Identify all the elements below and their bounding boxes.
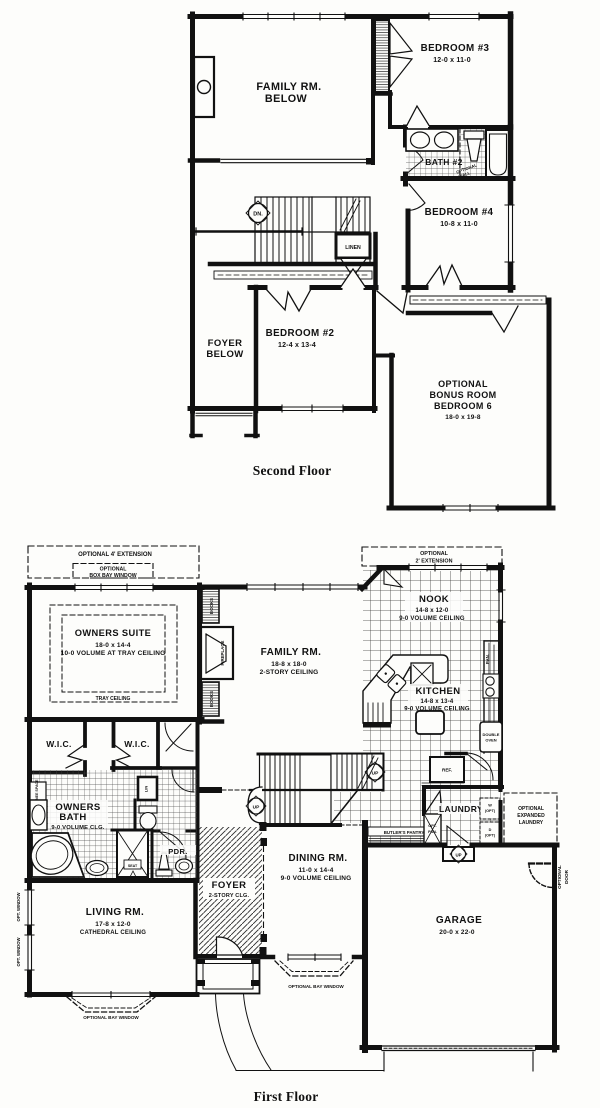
svg-text:14-8 x 13-4: 14-8 x 13-4	[421, 699, 454, 705]
svg-text:14-8 x 12-0: 14-8 x 12-0	[416, 608, 449, 614]
svg-text:KITCHEN: KITCHEN	[415, 686, 460, 697]
svg-text:2' EXTENSION: 2' EXTENSION	[416, 559, 453, 565]
svg-text:OPT.: OPT.	[428, 824, 436, 828]
svg-text:PAN.: PAN.	[485, 654, 490, 664]
svg-text:BUTLER'S PANTRY: BUTLER'S PANTRY	[384, 830, 425, 835]
svg-text:(OPT): (OPT)	[485, 809, 496, 813]
svg-text:BELOW: BELOW	[265, 93, 308, 105]
svg-text:BOX BAY WINDOW: BOX BAY WINDOW	[89, 573, 136, 579]
svg-text:GARAGE: GARAGE	[436, 915, 482, 926]
svg-text:2-STORY CEILING: 2-STORY CEILING	[260, 669, 319, 676]
svg-text:W: W	[488, 804, 492, 808]
svg-text:FOYER: FOYER	[212, 880, 247, 891]
svg-text:FAMILY RM.: FAMILY RM.	[261, 647, 322, 658]
svg-text:BEDROOM 6: BEDROOM 6	[434, 401, 492, 411]
svg-text:W.I.C.: W.I.C.	[124, 739, 150, 749]
svg-text:OPTIONAL BAY WINDOW: OPTIONAL BAY WINDOW	[288, 984, 344, 989]
svg-text:OPTIONAL: OPTIONAL	[557, 865, 562, 889]
svg-text:18-8 x 18-0: 18-8 x 18-0	[271, 661, 307, 668]
svg-text:BELOW: BELOW	[206, 349, 243, 360]
svg-text:BOOKS: BOOKS	[209, 598, 214, 614]
svg-text:11-0 x 14-4: 11-0 x 14-4	[298, 867, 333, 874]
svg-text:18-0 x 19-8: 18-0 x 19-8	[445, 414, 481, 421]
svg-text:9-0 VOLUME CLG.: 9-0 VOLUME CLG.	[51, 825, 104, 831]
svg-text:LINEN: LINEN	[345, 245, 361, 251]
svg-text:OPTIONAL: OPTIONAL	[100, 567, 128, 573]
svg-text:OPTIONAL: OPTIONAL	[420, 551, 449, 557]
svg-text:(OPT): (OPT)	[485, 834, 496, 838]
svg-text:LAUNDRY: LAUNDRY	[439, 804, 483, 814]
svg-text:10-0 VOLUME AT TRAY CEILIN: 10-0 VOLUME AT TRAY CEILING	[61, 650, 166, 657]
svg-text:OPTIONAL: OPTIONAL	[518, 806, 544, 812]
svg-text:BEDROOM #3: BEDROOM #3	[421, 43, 490, 54]
svg-text:2-STORY CLG.: 2-STORY CLG.	[209, 893, 250, 899]
svg-text:W.I.C.: W.I.C.	[46, 739, 72, 749]
svg-text:UP: UP	[455, 853, 461, 858]
svg-text:OWNERS SUITE: OWNERS SUITE	[75, 628, 152, 638]
svg-text:BONUS ROOM: BONUS ROOM	[430, 390, 497, 400]
svg-text:Second Floor: Second Floor	[253, 463, 332, 478]
svg-text:OVEN: OVEN	[485, 738, 496, 743]
svg-text:First Floor: First Floor	[254, 1089, 319, 1104]
svg-text:18-0 x 14-4: 18-0 x 14-4	[95, 642, 131, 649]
svg-text:9-0 VOLUME CEILING: 9-0 VOLUME CEILING	[404, 707, 470, 713]
svg-text:KNEE SPACE: KNEE SPACE	[35, 779, 39, 803]
svg-text:17-8 x 12-0: 17-8 x 12-0	[95, 921, 131, 928]
svg-text:BOOKS: BOOKS	[209, 691, 214, 707]
svg-text:BEDROOM #4: BEDROOM #4	[425, 207, 494, 218]
svg-text:FIREPLACE: FIREPLACE	[220, 640, 225, 665]
svg-text:OPT. WINDOW: OPT. WINDOW	[16, 938, 21, 967]
svg-text:UP: UP	[372, 771, 379, 777]
svg-text:DINING RM.: DINING RM.	[289, 853, 348, 864]
svg-text:9-0 VOLUME CEILING: 9-0 VOLUME CEILING	[281, 875, 352, 882]
svg-text:OPTIONAL 4' EXTENSION: OPTIONAL 4' EXTENSION	[78, 552, 152, 558]
svg-text:BATH #2: BATH #2	[425, 157, 463, 167]
svg-text:12-4 x 13-4: 12-4 x 13-4	[278, 342, 316, 349]
svg-text:DOUBLE: DOUBLE	[483, 732, 500, 737]
svg-text:SEAT: SEAT	[128, 864, 138, 868]
svg-text:UP: UP	[253, 805, 260, 811]
svg-text:LIN: LIN	[144, 786, 149, 793]
svg-text:10-8 x 11-0: 10-8 x 11-0	[440, 221, 478, 228]
svg-text:LIVING RM.: LIVING RM.	[86, 907, 144, 918]
svg-text:CATHEDRAL CEILING: CATHEDRAL CEILING	[80, 930, 146, 936]
svg-text:NOOK: NOOK	[419, 594, 449, 605]
svg-text:PAN.: PAN.	[428, 830, 437, 834]
svg-text:OPTIONAL BAY WINDOW: OPTIONAL BAY WINDOW	[83, 1015, 139, 1020]
svg-text:DOOR: DOOR	[564, 869, 569, 883]
svg-text:12-0 x 11-0: 12-0 x 11-0	[433, 57, 471, 64]
svg-text:D: D	[489, 828, 492, 832]
svg-text:EXPANDED: EXPANDED	[517, 813, 545, 819]
svg-text:TRAY CEILING: TRAY CEILING	[96, 696, 131, 702]
svg-text:DN.: DN.	[253, 212, 263, 218]
svg-text:FOYER: FOYER	[208, 338, 243, 349]
svg-text:FAMILY RM.: FAMILY RM.	[256, 81, 321, 93]
svg-text:LAUNDRY: LAUNDRY	[519, 820, 544, 826]
svg-text:REF.: REF.	[442, 768, 452, 773]
svg-text:20-0 x 22-0: 20-0 x 22-0	[439, 929, 475, 936]
svg-text:BEDROOM #2: BEDROOM #2	[266, 328, 335, 339]
svg-text:BATH: BATH	[59, 812, 86, 823]
svg-text:OPTIONAL: OPTIONAL	[438, 379, 488, 389]
svg-text:PDR.: PDR.	[168, 847, 188, 856]
svg-text:9-0 VOLUME CEILING: 9-0 VOLUME CEILING	[399, 616, 465, 622]
svg-text:OPT. WINDOW: OPT. WINDOW	[16, 893, 21, 922]
